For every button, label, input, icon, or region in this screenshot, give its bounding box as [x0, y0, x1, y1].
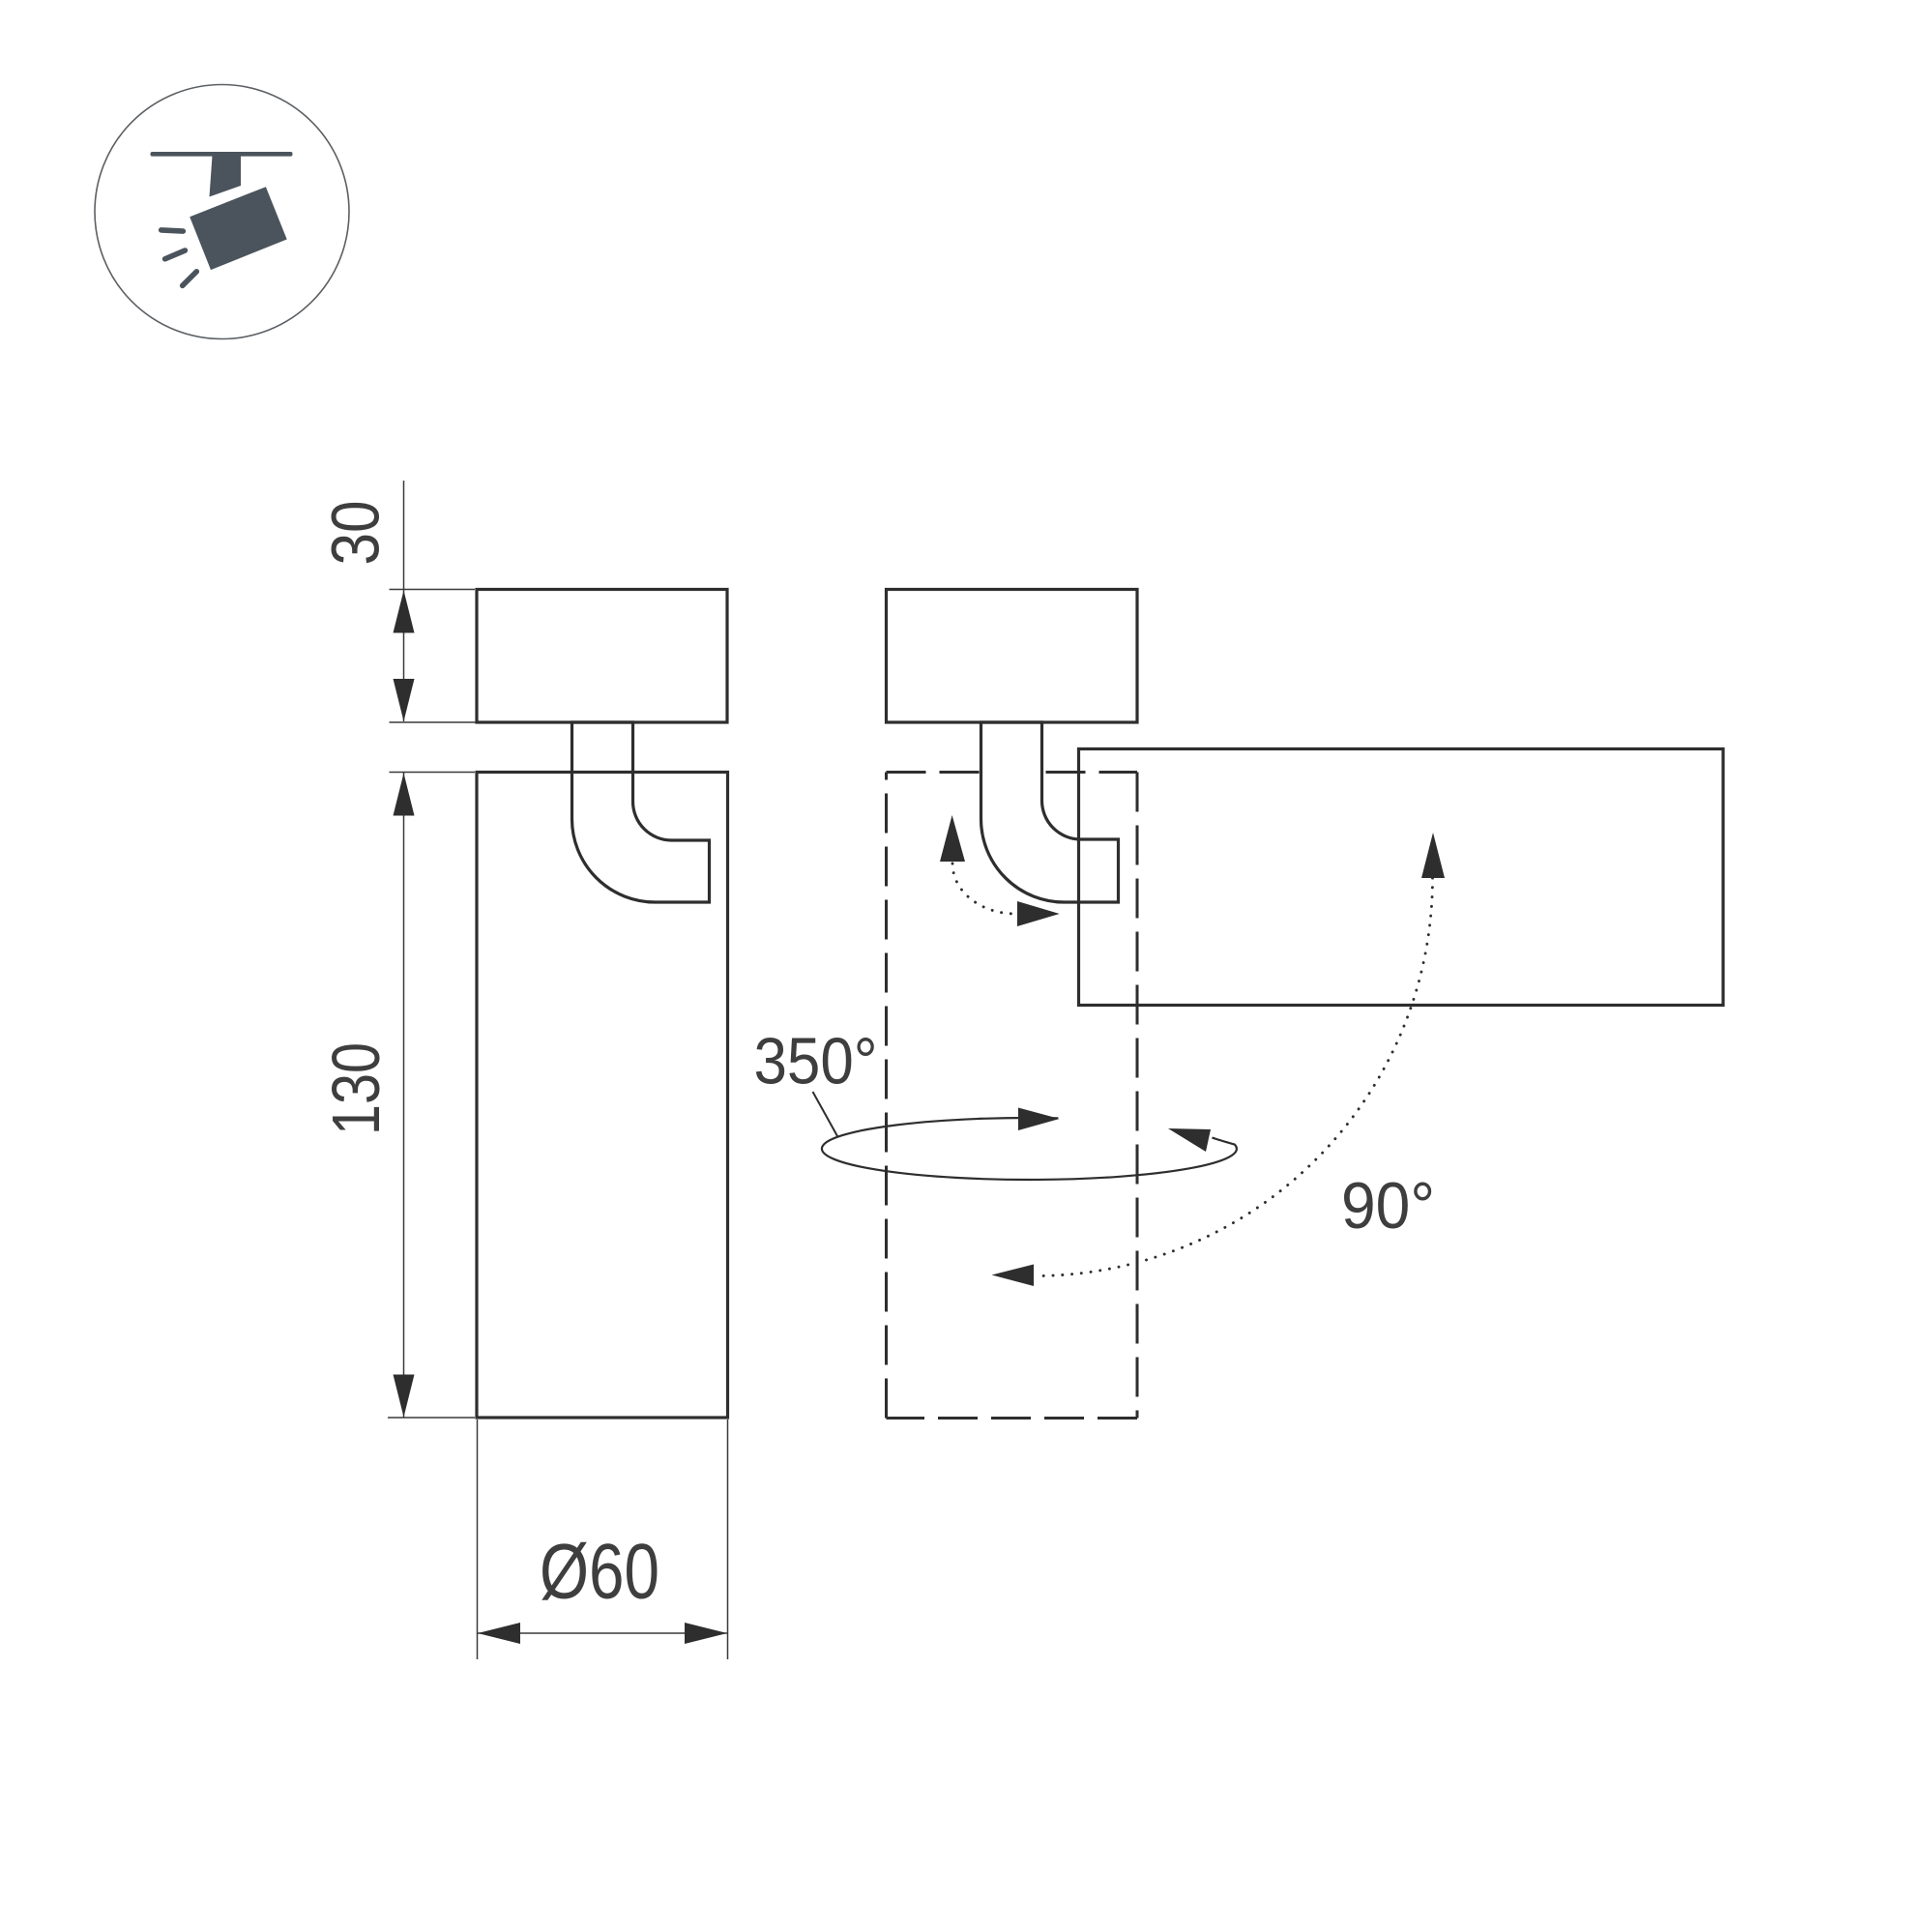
svg-text:30: 30: [318, 501, 394, 566]
svg-text:Ø60: Ø60: [540, 1529, 659, 1616]
svg-text:350°: 350°: [754, 1025, 878, 1098]
svg-text:90°: 90°: [1341, 1169, 1435, 1243]
svg-text:130: 130: [318, 1042, 394, 1135]
